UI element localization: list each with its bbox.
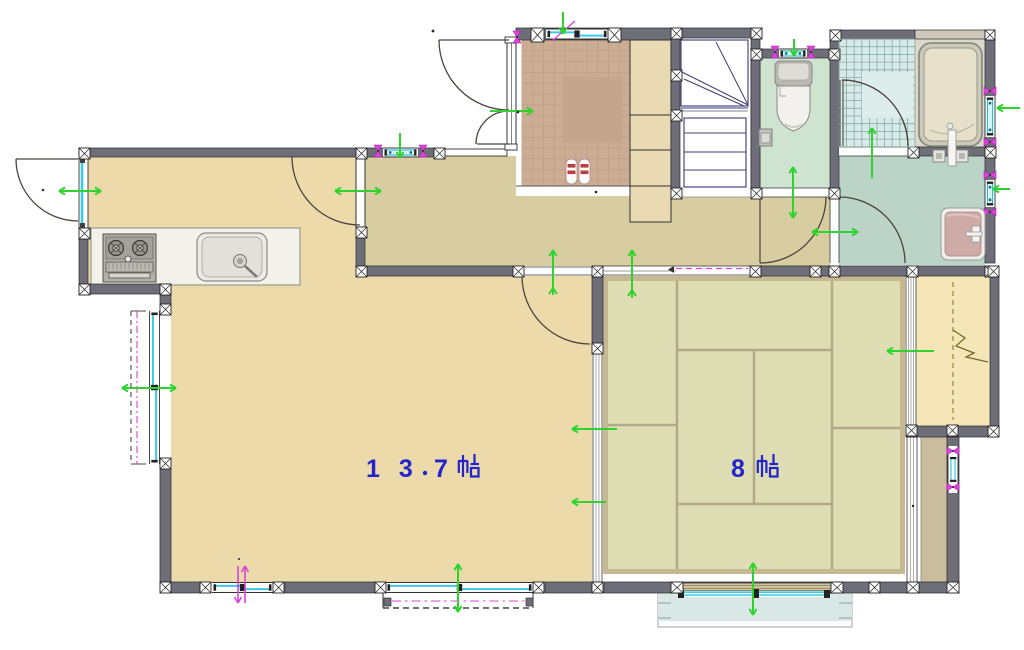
svg-text:8: 8 (731, 455, 745, 483)
svg-text:1 3: 1 3 (366, 455, 419, 483)
svg-text:7: 7 (434, 455, 448, 483)
